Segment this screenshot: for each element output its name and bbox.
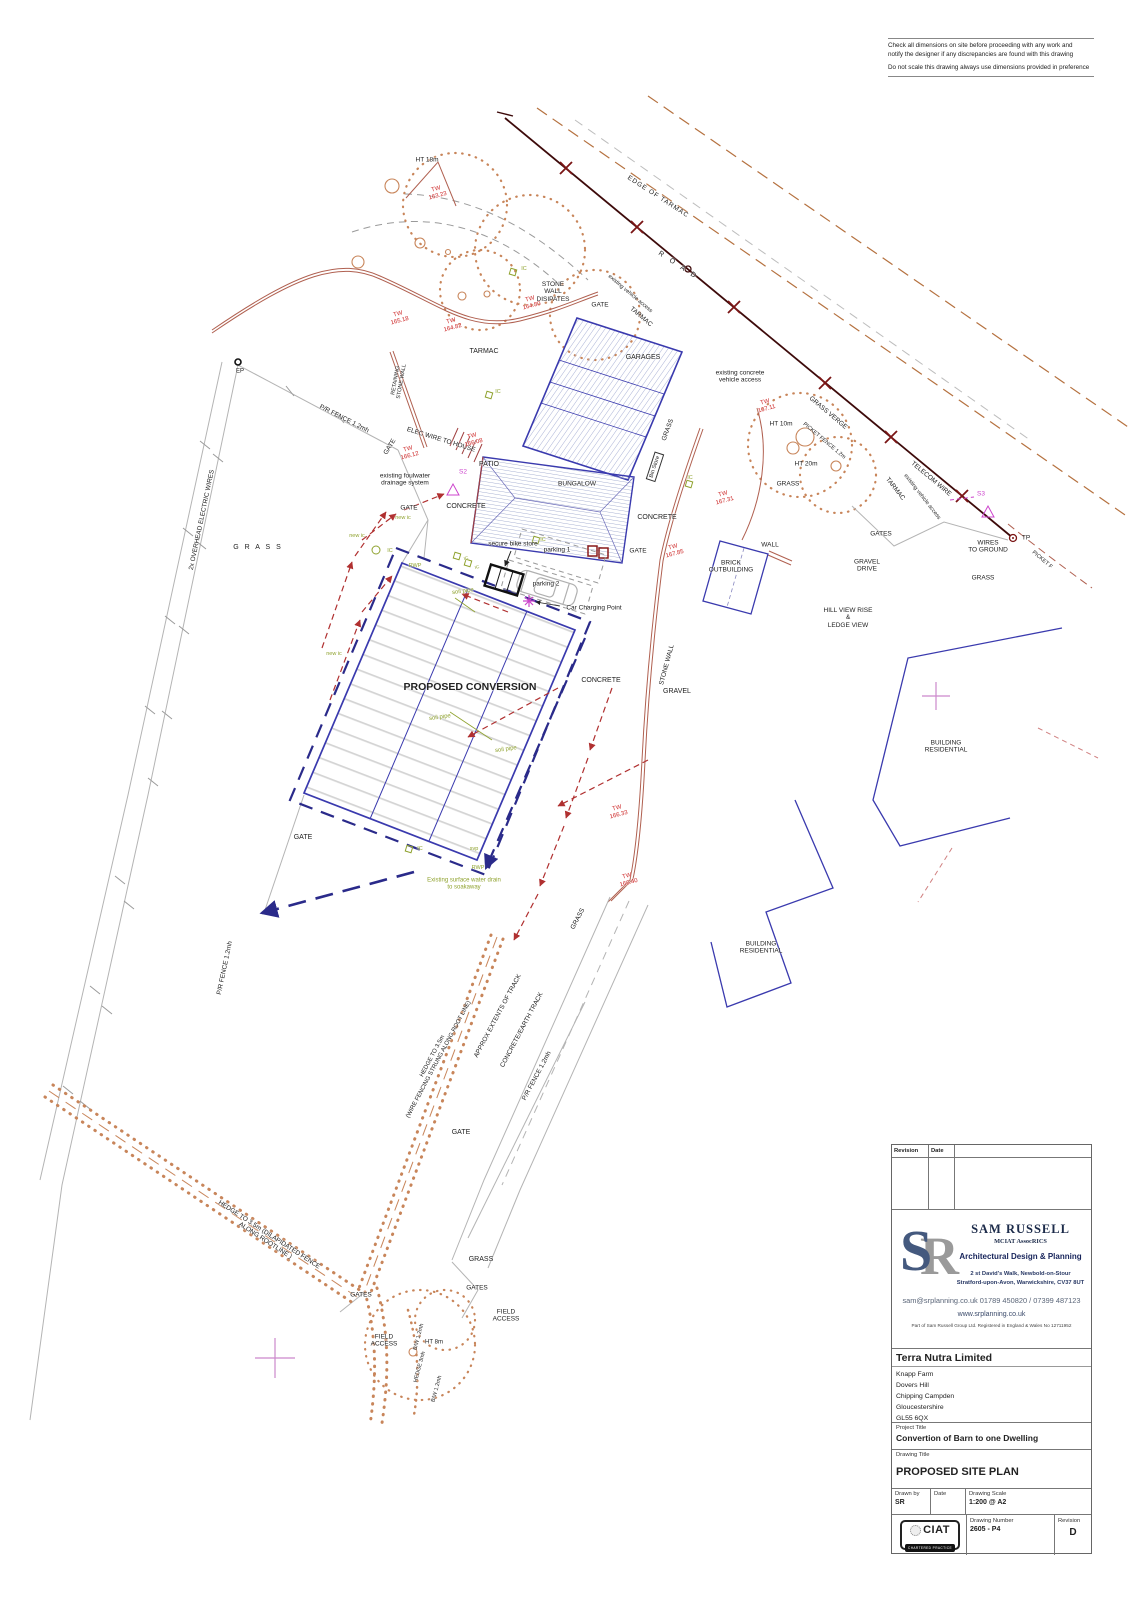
revision-value: D <box>1058 1527 1088 1538</box>
revision-table: Revision Date . <box>892 1145 1091 1209</box>
firm-contact: sam@srplanning.co.uk 01789 450820 / 0739… <box>892 1296 1091 1305</box>
firm-credentials: MCIAT AssocRICS <box>950 1238 1091 1245</box>
firm-website[interactable]: www.srplanning.co.uk <box>892 1311 1091 1318</box>
client-address-line: Dovers Hill <box>896 1380 1087 1391</box>
residential-buildings <box>711 628 1098 1007</box>
scale-label: Drawing Scale <box>969 1491 1088 1497</box>
electric-pole-marker <box>235 359 241 365</box>
date-label: Date <box>934 1491 962 1497</box>
drawn-by-label: Drawn by <box>895 1491 927 1497</box>
date-header: Date <box>929 1145 954 1158</box>
hedges <box>45 935 503 1425</box>
ciat-subtitle: CHARTERED PRACTICE <box>905 1544 955 1552</box>
firm-tagline: Architectural Design & Planning <box>950 1252 1091 1261</box>
proposed-conversion-building <box>290 548 590 875</box>
disclaimer-line-2: Do not scale this drawing always use dim… <box>888 64 1094 73</box>
garages-building <box>523 318 682 480</box>
revision-label: Revision <box>1058 1518 1088 1524</box>
monogram-s: S <box>900 1222 932 1280</box>
drawing-panel: Drawing Title PROPOSED SITE PLAN <box>892 1449 1091 1488</box>
client-panel: Terra Nutra Limited Knapp Farm Dovers Hi… <box>892 1348 1091 1422</box>
project-panel: Project Title Convertion of Barn to one … <box>892 1422 1091 1449</box>
client-address-line: Knapp Farm <box>896 1369 1087 1380</box>
client-address-line: Gloucestershire <box>896 1402 1087 1413</box>
client-address-line: Chipping Campden <box>896 1391 1087 1402</box>
firm-address-1: 2 st David's Walk, Newbold-on-Stour <box>950 1270 1091 1279</box>
disclaimer-note: Check all dimensions on site before proc… <box>888 38 1094 77</box>
drawing-title-label: Drawing Title <box>896 1452 1087 1458</box>
project-title-label: Project Title <box>896 1425 1087 1431</box>
fence-ticks <box>63 386 344 1109</box>
client-name: Terra Nutra Limited <box>892 1349 1091 1367</box>
ciat-emblem-icon <box>910 1525 921 1536</box>
sr-monogram-logo: R S <box>898 1222 956 1294</box>
project-title: Convertion of Barn to one Dwelling <box>896 1433 1087 1443</box>
scale-value: 1:200 @ A2 <box>969 1499 1088 1506</box>
ciat-logo: CIAT CHARTERED PRACTICE <box>900 1520 960 1550</box>
drawing-sheet: HT 18mTW 163.23EDGE OF TARMACR O A DSTON… <box>0 0 1131 1600</box>
drawing-number-label: Drawing Number <box>970 1518 1051 1524</box>
revision-header: Revision <box>892 1145 928 1158</box>
drawing-number-value: 2605 - P4 <box>970 1526 1051 1533</box>
firm-name: SAM RUSSELL <box>950 1222 1091 1237</box>
disclaimer-line-1: Check all dimensions on site before proc… <box>888 42 1094 60</box>
drawing-title: PROPOSED SITE PLAN <box>896 1466 1087 1478</box>
ciat-name: CIAT <box>923 1524 950 1536</box>
firm-registration: Part of Sam Russell Group Ltd. Registere… <box>892 1323 1091 1328</box>
firm-address-2: Stratford-upon-Avon, Warwickshire, CV37 … <box>950 1279 1091 1288</box>
title-block: Revision Date . R S SAM RUSSELL MCIAT As… <box>891 1144 1092 1554</box>
meta-row-2: CIAT CHARTERED PRACTICE Drawing Number 2… <box>892 1514 1091 1555</box>
drawn-by-value: SR <box>895 1499 927 1506</box>
firm-panel: R S SAM RUSSELL MCIAT AssocRICS Architec… <box>892 1209 1091 1348</box>
meta-row-1: Drawn by SR Date Drawing Scale 1:200 @ A… <box>892 1488 1091 1514</box>
brick-outbuilding-building <box>703 541 768 614</box>
overhead-dashed-lines <box>352 194 588 285</box>
